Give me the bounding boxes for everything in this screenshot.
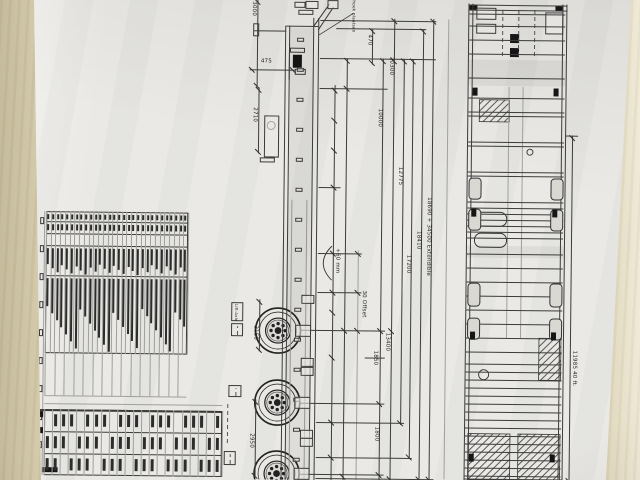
table-text — [90, 225, 92, 231]
table-text — [146, 249, 148, 272]
table-text — [161, 225, 163, 231]
dim-label-dim_20300: 20300 — [388, 57, 394, 76]
table-text — [86, 437, 89, 449]
crossmember-end — [294, 308, 301, 312]
table-text — [175, 437, 178, 449]
table-text — [119, 437, 122, 449]
crossmember-end — [293, 428, 300, 432]
table-text — [133, 215, 135, 220]
table-text — [47, 248, 49, 264]
table-text — [159, 415, 162, 427]
container-lock — [470, 332, 475, 340]
front-module — [545, 12, 563, 34]
crossmember-end — [296, 158, 303, 162]
table-text — [47, 224, 49, 230]
table-text — [108, 249, 110, 273]
dim-label-dim_3000: 3000 — [250, 1, 256, 16]
dim-label-dim_offset: 30 Offset — [360, 290, 366, 317]
crossmember-end — [294, 368, 301, 372]
dim-label-475: 475 — [261, 59, 272, 65]
tire-top-view — [549, 283, 562, 307]
table-text — [109, 215, 111, 220]
table-text — [119, 415, 122, 427]
table-text — [185, 216, 187, 221]
dim-label-dim_2950: 2950 — [248, 433, 254, 448]
suspension-hanger — [300, 438, 313, 447]
table-text — [152, 215, 154, 220]
table-text — [57, 214, 59, 219]
table-text — [76, 224, 78, 230]
dim-label-dim_2150: 2150 — [252, 325, 258, 340]
tire-top-view — [550, 178, 563, 200]
table-text — [174, 279, 176, 312]
table-text — [142, 249, 144, 268]
axle-mount — [294, 397, 310, 409]
suspension-hanger — [301, 358, 314, 367]
table-text — [151, 437, 154, 449]
table-text — [117, 279, 119, 320]
table-text — [170, 215, 172, 220]
table-text — [86, 415, 89, 427]
table-text — [102, 459, 105, 471]
annotation-label: hoek plaatsen — [351, 0, 356, 32]
dim-label-dim_overall: 18690 + 34500 Extendible — [425, 197, 431, 276]
table-text — [179, 280, 181, 320]
table-text — [127, 437, 130, 449]
table-text — [180, 216, 182, 221]
table-text — [167, 459, 170, 471]
table-text — [132, 249, 134, 271]
table-text — [104, 249, 106, 269]
table-text — [95, 225, 97, 231]
table-text — [151, 459, 154, 471]
table-text — [156, 215, 158, 220]
table-text — [94, 437, 97, 449]
table-text — [208, 438, 211, 450]
table-index-cell — [40, 245, 44, 252]
table-text — [123, 215, 125, 220]
container-lock — [551, 332, 556, 340]
table-text — [57, 224, 59, 230]
table-text — [166, 225, 168, 231]
crossmember-end — [293, 458, 300, 462]
table-text — [56, 248, 58, 272]
table-text — [90, 215, 92, 220]
lift-axle-badge: Lift-Axle — [231, 302, 243, 321]
table-text — [104, 215, 106, 220]
table-text — [167, 415, 170, 427]
table-text — [147, 225, 149, 231]
table-text — [46, 278, 48, 306]
table-text — [47, 214, 49, 219]
dim-label-dim_2710: 2710 — [251, 107, 257, 122]
table-text — [137, 225, 139, 231]
suspension-hanger — [301, 295, 314, 304]
table-text — [179, 250, 181, 268]
table-text — [128, 215, 130, 220]
table-text — [62, 414, 65, 426]
table-text — [191, 438, 194, 450]
photo-of-trailer-engineering-drawing: Lift-Axle 475 300027102150295 — [0, 0, 640, 480]
table-text — [127, 415, 130, 427]
table-text — [143, 437, 146, 449]
tire-top-view — [468, 178, 481, 200]
table-text — [137, 249, 139, 275]
table-text — [46, 436, 49, 448]
crossmember-end — [295, 278, 302, 282]
table-text — [76, 214, 78, 219]
table-index-cell — [40, 217, 44, 224]
crossmember-end — [296, 98, 303, 102]
table-index-cell — [39, 301, 43, 308]
table-text — [199, 460, 202, 472]
table-text — [170, 225, 172, 231]
table-text — [156, 249, 158, 269]
table-text — [89, 249, 91, 268]
table-text — [118, 225, 120, 231]
table-text — [123, 249, 125, 274]
table-text — [143, 459, 146, 471]
table-text — [200, 416, 203, 428]
table-text — [54, 414, 57, 426]
table-text — [114, 225, 116, 231]
table-text — [142, 215, 144, 220]
table-text — [94, 249, 96, 272]
table-text — [99, 215, 101, 220]
table-text — [71, 224, 73, 230]
dim-label-dim_10000: 10000 — [376, 109, 382, 128]
suspension-hanger — [301, 367, 314, 376]
table-text — [85, 225, 87, 231]
table-index-cell — [39, 357, 43, 364]
table-text — [170, 249, 172, 270]
table-text — [123, 225, 125, 231]
table-text — [160, 249, 162, 273]
table-text — [95, 415, 98, 427]
table-text — [175, 225, 177, 231]
extension-zone-shade — [469, 60, 566, 87]
axle-badge — [224, 451, 236, 465]
table-text — [80, 248, 82, 270]
table-text — [161, 215, 163, 220]
table-text — [114, 215, 116, 220]
axle-badge — [231, 323, 243, 336]
table-text — [66, 248, 68, 269]
container-lock — [469, 454, 474, 462]
front-fitting — [305, 1, 318, 9]
crossmember-end — [297, 68, 304, 72]
table-index-cell — [39, 329, 43, 336]
landing-gear-foot — [260, 157, 275, 162]
table-text — [135, 459, 138, 471]
table-text — [175, 459, 178, 471]
table-text — [156, 225, 158, 231]
table-text — [151, 249, 153, 265]
table-text — [66, 224, 68, 230]
container-lock — [550, 454, 555, 462]
table-text — [183, 438, 186, 450]
axle-badge — [228, 385, 241, 397]
table-text — [151, 225, 153, 231]
table-text — [184, 250, 186, 272]
tire-top-view — [467, 283, 480, 307]
table-text — [52, 224, 54, 230]
table-text — [113, 249, 115, 266]
table-text — [166, 215, 168, 220]
lift-axle-badge-label: Lift-Axle — [234, 304, 238, 321]
container-lock — [552, 209, 557, 217]
table-text — [183, 460, 186, 472]
table-text — [70, 458, 73, 470]
table-text — [54, 458, 57, 470]
table-text — [75, 248, 77, 266]
table-text — [128, 225, 130, 231]
table-text — [110, 459, 113, 471]
table-index-cell — [40, 273, 44, 280]
table-text — [70, 414, 73, 426]
dim-label-dim_17200: 17200 — [405, 255, 411, 274]
table-text — [66, 214, 68, 219]
table-text — [118, 215, 120, 220]
table-text — [84, 279, 86, 317]
table-text — [132, 225, 134, 231]
table-text — [215, 460, 218, 472]
table-text — [80, 224, 82, 230]
table-text — [142, 225, 144, 231]
crossmember-end — [295, 218, 302, 222]
table-text — [113, 279, 115, 313]
table-text — [61, 248, 63, 265]
gooseneck-plate — [327, 0, 338, 9]
table-text — [81, 214, 83, 219]
table-text — [165, 249, 167, 266]
table-text — [147, 215, 149, 220]
front-fitting — [298, 10, 313, 15]
crossmember-end — [296, 188, 303, 192]
table-text — [99, 249, 101, 265]
table-text — [216, 438, 219, 450]
table-text — [104, 225, 106, 231]
table-text — [184, 416, 187, 428]
table-text — [46, 458, 49, 470]
table-text — [216, 416, 219, 428]
container-lock — [473, 88, 478, 96]
table-text — [118, 249, 120, 270]
table-text — [175, 249, 177, 274]
table-text — [62, 436, 65, 448]
crossmember-end — [295, 248, 302, 252]
table-text — [192, 416, 195, 428]
table-text — [141, 279, 143, 309]
table-text — [103, 415, 106, 427]
table-text — [95, 215, 97, 220]
table-text — [175, 215, 177, 220]
table-text — [99, 225, 101, 231]
table-text — [85, 249, 87, 275]
table-text — [159, 437, 162, 449]
table-text — [127, 249, 129, 267]
table-text — [85, 215, 87, 220]
dim-label-dim_40ft: 11985 40 ft. — [570, 351, 576, 387]
table-text — [135, 415, 138, 427]
dim-label-dim_1850: 1850 — [372, 351, 378, 366]
crossmember-end — [294, 338, 301, 342]
table-text — [62, 214, 64, 219]
dim-label-dim_13400: 13400 — [384, 333, 390, 352]
table-text — [80, 278, 82, 309]
table-text — [86, 459, 89, 471]
axle-mount — [295, 325, 311, 337]
dim-label-dim_12775: 12775 — [397, 167, 403, 186]
container-lock — [554, 88, 559, 96]
table-text — [180, 226, 182, 232]
table-text — [51, 278, 53, 313]
table-text — [71, 214, 73, 219]
table-text — [207, 460, 210, 472]
crossmember-end — [297, 38, 304, 42]
table-text — [52, 214, 54, 219]
extension-line — [319, 187, 341, 188]
drawing-sheet: Lift-Axle 475 300027102150295 — [0, 0, 640, 480]
table-text — [111, 437, 114, 449]
table-text — [61, 224, 63, 230]
landing-gear-leg — [264, 115, 279, 157]
axle-mount — [293, 468, 309, 480]
drawing-content: Lift-Axle 475 300027102150295 — [0, 0, 640, 480]
dim-label-dim_18410: 18410 — [415, 231, 421, 250]
table-text — [52, 248, 54, 268]
dim-label-dim_470: 470 — [366, 34, 372, 45]
dim-label-dim_1800: 1800 — [373, 427, 379, 442]
table-text — [109, 225, 111, 231]
crossmember-shade — [467, 246, 564, 259]
dim-label-dim_lift: +60 mm — [334, 248, 340, 273]
container-lock — [471, 209, 476, 217]
table-text — [54, 436, 57, 448]
table-text — [70, 248, 72, 273]
table-text — [185, 226, 187, 232]
front-fitting — [294, 2, 305, 8]
table-text — [78, 458, 81, 470]
table-text — [151, 415, 154, 427]
crossmember-end — [296, 128, 303, 132]
table-text — [118, 459, 121, 471]
table-text — [137, 215, 139, 220]
table-text — [146, 279, 148, 316]
table-text — [78, 436, 81, 448]
rail-web-shade — [285, 28, 313, 480]
